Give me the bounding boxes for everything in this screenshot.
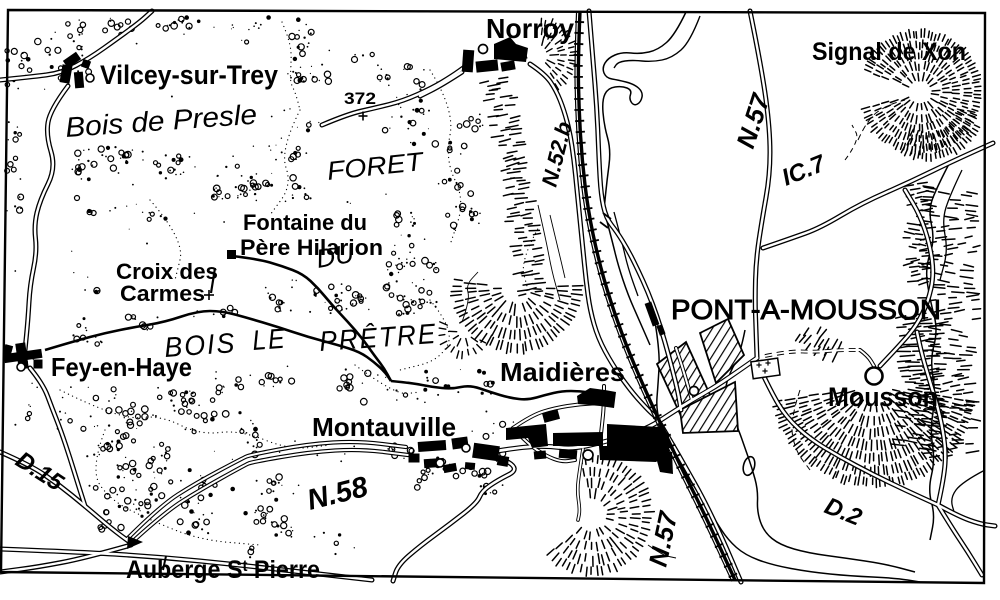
svg-text:Vilcey-sur-Trey: Vilcey-sur-Trey	[100, 60, 278, 90]
svg-text:Norroy: Norroy	[486, 13, 574, 44]
svg-text:Auberge St Pierre: Auberge St Pierre	[126, 556, 320, 584]
svg-text:Maidières: Maidières	[500, 357, 625, 387]
svg-text:Signal de Xon: Signal de Xon	[812, 38, 966, 66]
svg-text:Père Hilarion: Père Hilarion	[240, 235, 383, 260]
svg-text:Montauville: Montauville	[312, 412, 456, 442]
svg-text:LE: LE	[251, 323, 287, 356]
svg-text:Fontaine du: Fontaine du	[243, 210, 367, 235]
svg-text:Fey-en-Haye: Fey-en-Haye	[51, 352, 192, 382]
svg-text:PONT-A-MOUSSON: PONT-A-MOUSSON	[671, 294, 941, 325]
svg-text:Carmes: Carmes	[120, 281, 205, 306]
svg-text:372: 372	[344, 89, 376, 108]
svg-text:Mousson: Mousson	[828, 382, 938, 412]
